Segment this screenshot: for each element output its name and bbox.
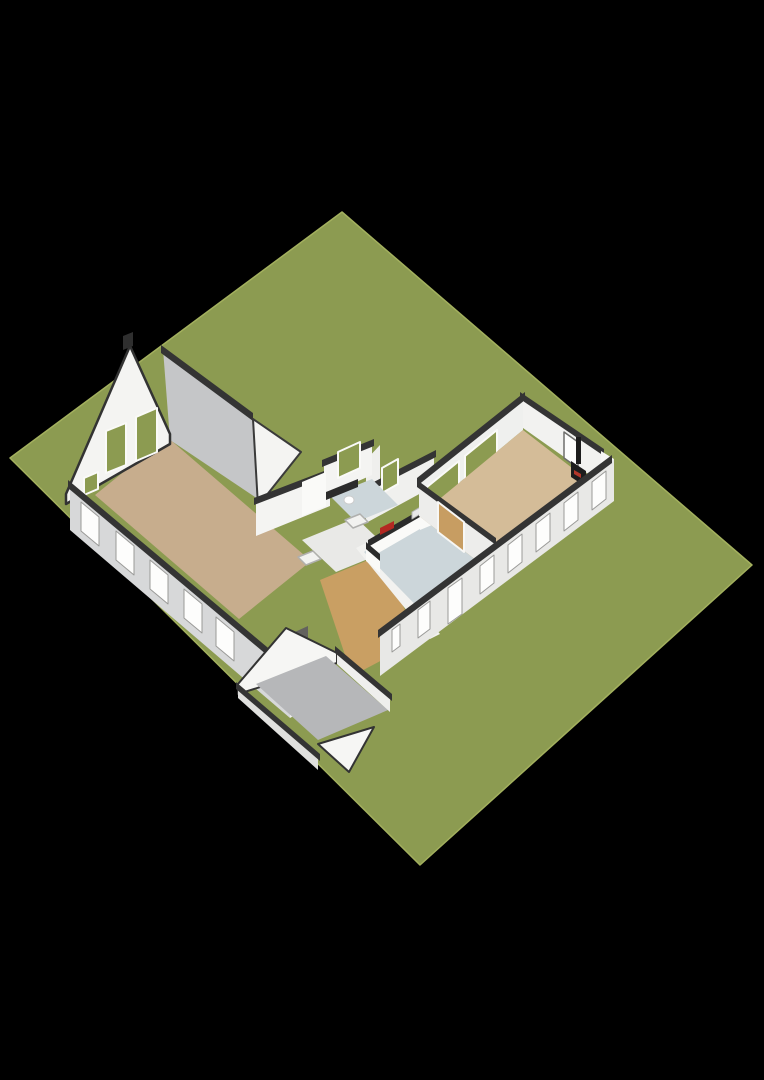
gable-green-door-2 xyxy=(136,408,157,461)
floorplan-3d-image xyxy=(0,0,764,1080)
gable-green-door-1 xyxy=(106,423,126,473)
toilet xyxy=(344,496,354,504)
stove-pipe xyxy=(576,437,581,464)
floorplan-svg xyxy=(0,0,764,1080)
